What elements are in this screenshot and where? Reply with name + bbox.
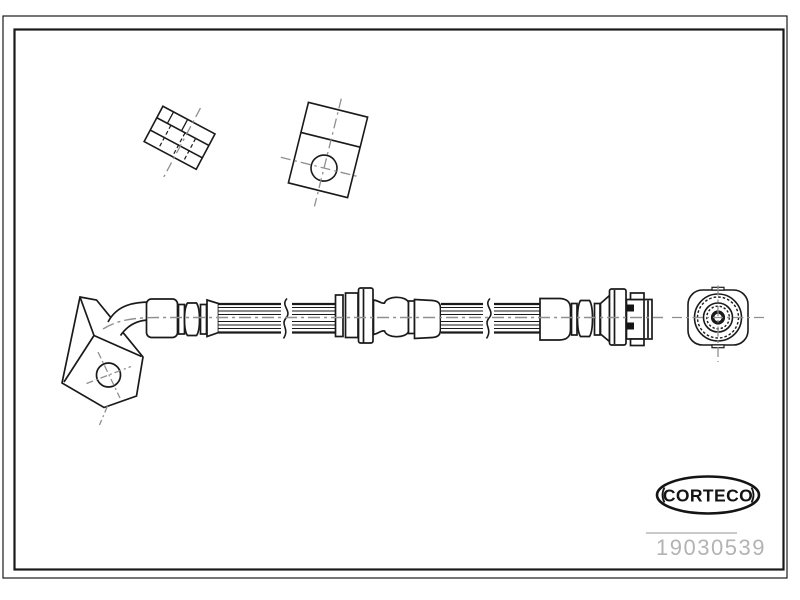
part-number-block: 19030539 [646, 533, 766, 560]
crimp-ring [595, 304, 601, 336]
crimp-cone [207, 300, 219, 337]
mid-mount-fitting [336, 288, 441, 343]
crimp-ring [201, 305, 207, 335]
break-mark [284, 299, 288, 339]
end-tab [631, 293, 645, 300]
clip-body [144, 106, 215, 169]
mid-ring [336, 295, 344, 337]
mid-flange [359, 288, 374, 343]
crimp-ring [179, 305, 185, 335]
part-number-text: 19030539 [656, 535, 766, 560]
bracket-body [288, 102, 367, 197]
end-tab [631, 339, 645, 346]
crimp-cone [601, 296, 610, 342]
mid-sleeve-tapered [415, 300, 441, 339]
mounting-clip-view [133, 92, 223, 190]
crimp-barrel [185, 303, 200, 336]
mounting-bracket-view [271, 88, 377, 216]
technical-drawing-canvas: CORTECO 19030539 [0, 0, 800, 600]
retainer-clip [627, 323, 634, 330]
mid-sleeve [346, 293, 359, 338]
break-mark [487, 299, 491, 339]
crimp-fitting-left [147, 299, 219, 338]
corteco-logo: CORTECO [657, 477, 759, 514]
corteco-logo-text: CORTECO [663, 486, 753, 506]
catalog-drawing-page: CORTECO 19030539 [0, 0, 800, 600]
crimp-socket [540, 299, 571, 341]
crimp-ring [572, 304, 578, 336]
brake-hose-side-view [62, 288, 663, 425]
fitting-end-view [672, 286, 766, 363]
crimp-barrel [578, 301, 593, 337]
retainer-clip [627, 305, 634, 312]
